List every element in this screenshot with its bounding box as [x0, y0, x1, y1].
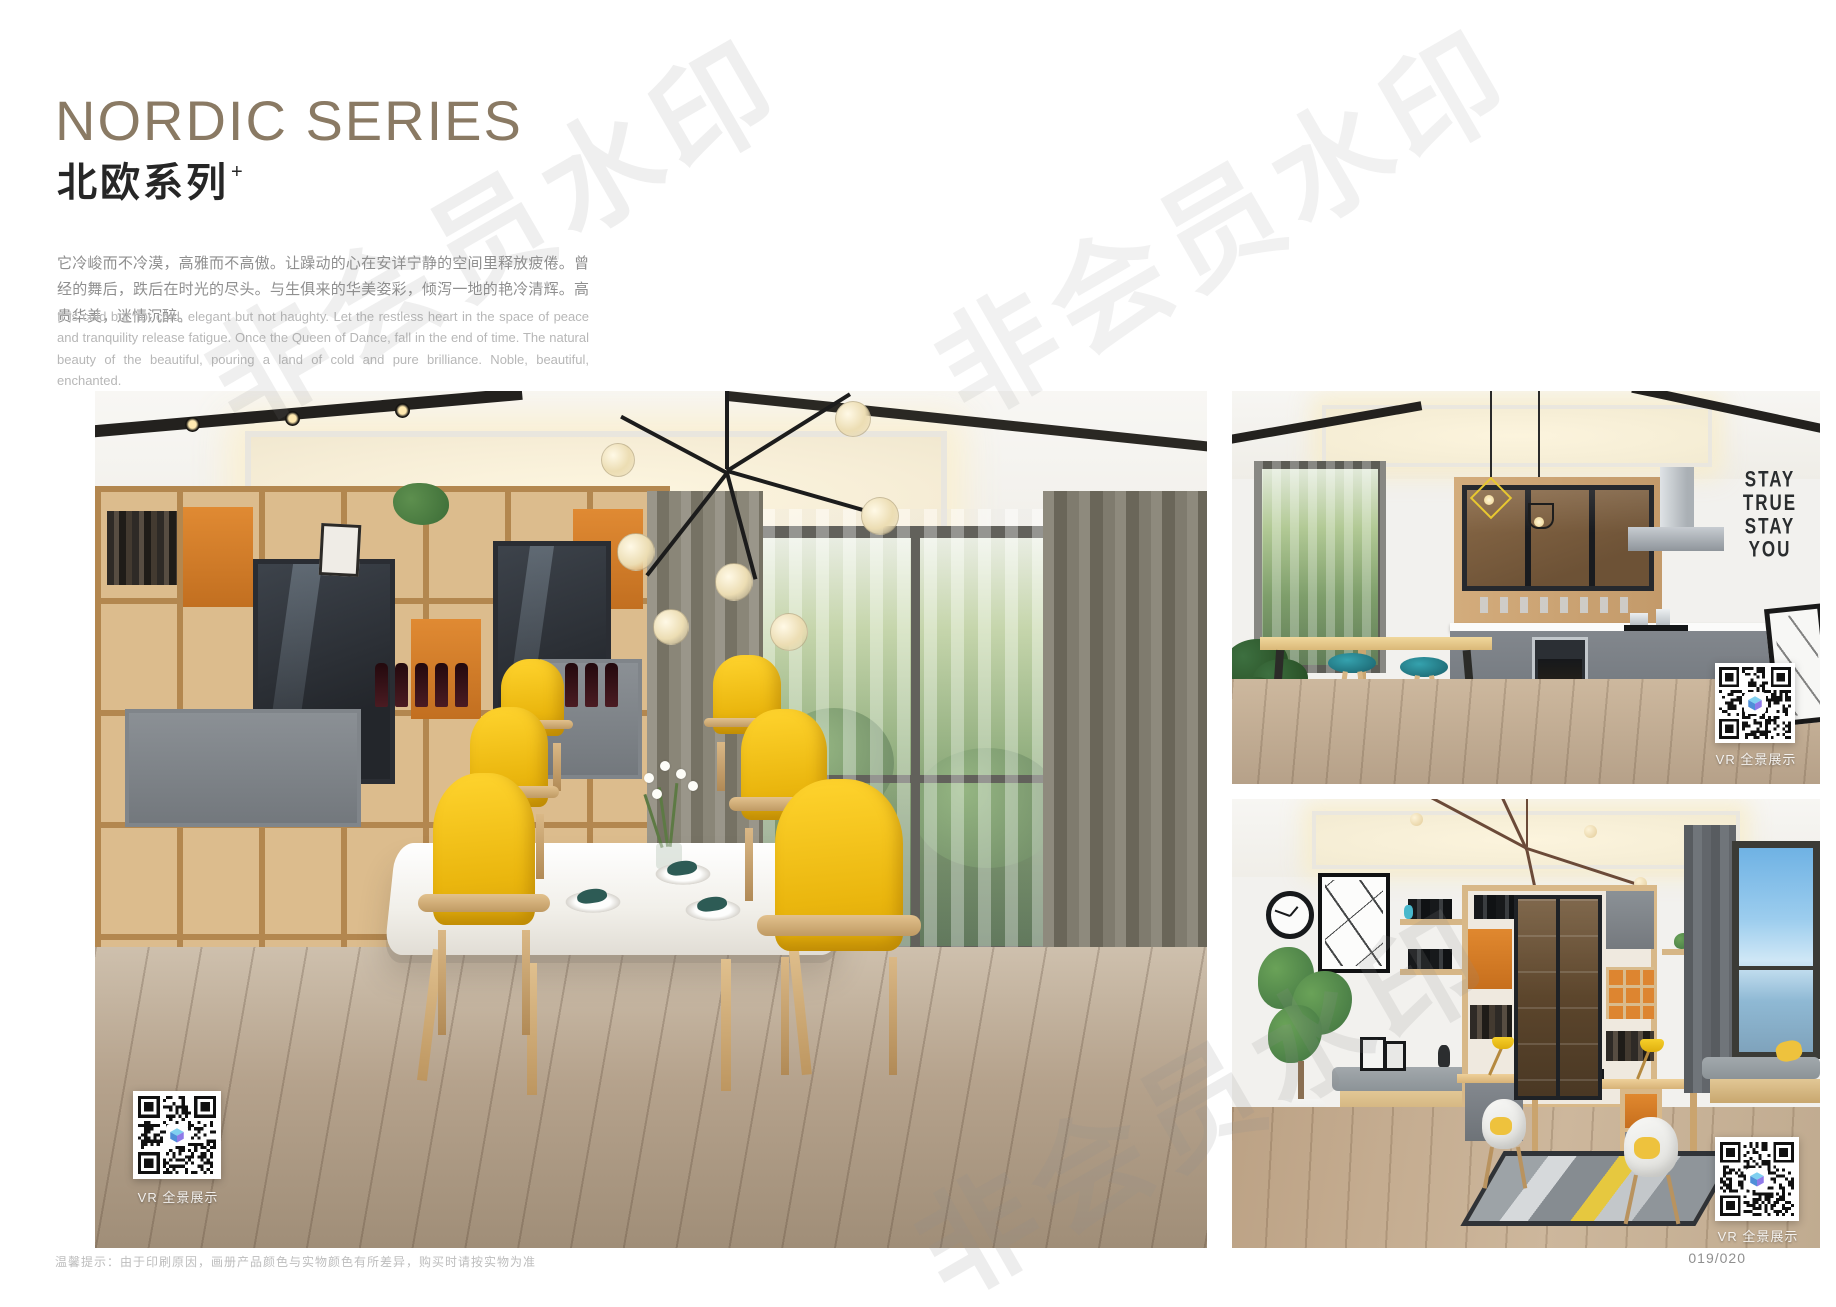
gray-cabinet-door: [125, 709, 361, 827]
gray-upper-cabinet: [1606, 891, 1654, 949]
wood-floor: [95, 947, 1207, 1248]
chandelier-globe: [617, 533, 655, 571]
wine-bottle: [435, 663, 448, 707]
wine-bottle: [455, 663, 468, 707]
abstract-art-frame: [1318, 873, 1390, 973]
chair-leg: [438, 930, 446, 1035]
chandelier-globe: [835, 401, 871, 437]
wine-bottle: [395, 663, 408, 707]
books: [107, 511, 177, 585]
qr-cube-logo: [166, 1124, 188, 1146]
clock-hand: [1275, 910, 1291, 917]
clock-hand: [1289, 906, 1298, 916]
shelf-cell-orange: [183, 507, 253, 607]
books: [1470, 1005, 1512, 1039]
watermark: 非会员水印: [900, 0, 1540, 450]
photo-kitchen: STAY TRUE STAY YOU VR 全景展示: [1232, 391, 1820, 784]
catalog-page: NORDIC SERIES 北欧系列+ 它冷峻而不冷漠，高雅而不高傲。让躁动的心…: [0, 0, 1836, 1307]
chair-leg: [745, 828, 753, 901]
shelf-plant: [393, 483, 449, 525]
wall-shelf: [1400, 919, 1462, 925]
bar-table: [1260, 637, 1492, 650]
cooking-pot: [1656, 609, 1670, 625]
description-en: It is cold but not cold, elegant but not…: [57, 306, 589, 392]
spotlight: [395, 403, 410, 418]
window-mullion: [1739, 966, 1813, 970]
window: [1732, 841, 1820, 1059]
pendant-cord: [1490, 391, 1492, 485]
chair-arm: [418, 894, 550, 912]
spotlight: [185, 417, 200, 432]
cube-icon: [1746, 694, 1764, 712]
cooktop: [1624, 625, 1688, 631]
chandelier-globe: [601, 443, 635, 477]
photo-dining-room: VR 全景展示: [95, 391, 1207, 1248]
chandelier-globe: [770, 613, 808, 651]
wine-bottle: [585, 663, 598, 707]
chair-pillow: [1490, 1117, 1512, 1135]
curtain: [1684, 825, 1736, 1093]
series-title-en: NORDIC SERIES: [55, 88, 523, 153]
qr-code: [1715, 663, 1795, 743]
vase: [1438, 1045, 1450, 1067]
dining-chair: [423, 773, 545, 1035]
shelf-decor: [1408, 899, 1452, 919]
qr-cube-logo: [1746, 1168, 1768, 1190]
cube-icon: [168, 1126, 186, 1144]
range-hood: [1628, 527, 1724, 551]
bulb: [1534, 517, 1544, 527]
window-seat-base: [1710, 1079, 1820, 1103]
stool-seat: [1328, 653, 1376, 673]
chair-leg: [717, 742, 725, 791]
wall-shelf: [1400, 969, 1462, 975]
desk-lamp-yellow: [1492, 1037, 1514, 1049]
wall-quote: STAY TRUE STAY YOU: [1730, 468, 1810, 561]
chandelier-rod: [645, 472, 728, 577]
sputnik-chandelier: [565, 391, 905, 655]
chandelier-globe: [653, 609, 689, 645]
cube-icon: [1748, 1170, 1766, 1188]
page-number: 019/020: [1688, 1250, 1746, 1266]
wine-bottle: [375, 663, 388, 707]
stool-seat: [1400, 657, 1448, 677]
chandelier-rod: [726, 469, 871, 514]
wall-quote-line: YOU: [1730, 538, 1810, 561]
orange-cubbies: [1606, 967, 1654, 1019]
shelf-cell-orange: [1468, 929, 1512, 989]
chandelier-globe: [861, 497, 899, 535]
chandelier-rod: [726, 392, 851, 472]
flower: [688, 781, 698, 791]
wine-bottle: [415, 663, 428, 707]
kitchen-jars: [1480, 597, 1636, 613]
flower-stem: [669, 783, 679, 847]
vr-label: VR 全景展示: [1715, 1226, 1801, 1245]
spotlight: [285, 411, 300, 426]
qr-code: [1715, 1137, 1799, 1221]
wall-quote-line: TRUE: [1730, 491, 1810, 514]
table-leg: [721, 959, 731, 1091]
chair-arm: [757, 915, 921, 936]
qr-code: [133, 1091, 221, 1179]
series-title-plus: +: [231, 161, 246, 183]
vr-panorama-tag: VR 全景展示: [133, 1091, 223, 1206]
series-title-zh-text: 北欧系列: [57, 161, 229, 205]
wall-quote-line: STAY: [1730, 515, 1810, 538]
qr-cube-logo: [1744, 692, 1766, 714]
bulb: [1484, 495, 1494, 505]
vr-panorama-tag: VR 全景展示: [1715, 663, 1797, 768]
chandelier-globe: [1584, 825, 1597, 838]
series-title-zh: 北欧系列+: [57, 150, 246, 208]
wine-bottle: [605, 663, 618, 707]
print-disclaimer: 温馨提示：由于印刷原因，画册产品颜色与实物颜色有所差异，购买时请按实物为准: [55, 1253, 536, 1270]
blue-vase: [1404, 905, 1413, 919]
glass-display-cabinet: [1514, 895, 1602, 1100]
wall-clock: [1266, 891, 1314, 939]
window-seat-cushion: [1702, 1057, 1820, 1079]
vr-label: VR 全景展示: [133, 1187, 223, 1206]
leaning-frame: [1360, 1037, 1386, 1071]
vr-panorama-tag: VR 全景展示: [1715, 1137, 1801, 1245]
geometric-rug: [1460, 1151, 1738, 1226]
wall-quote-line: STAY: [1730, 468, 1810, 491]
flower: [652, 789, 662, 799]
plant-foliage: [1268, 1005, 1322, 1063]
photo-study-room: VR 全景展示: [1232, 799, 1820, 1248]
chandelier-globe: [715, 563, 753, 601]
flower: [660, 761, 670, 771]
chair-leg: [781, 957, 789, 1075]
chair-leg: [522, 930, 530, 1035]
desk-lamp-yellow: [1640, 1039, 1664, 1052]
shelf-decor: [1408, 949, 1452, 969]
flower: [676, 769, 686, 779]
leaning-frame: [1384, 1041, 1406, 1071]
flower: [644, 773, 654, 783]
chandelier-stem: [725, 391, 729, 469]
chandelier-rod: [620, 415, 728, 475]
chair-leg: [889, 957, 897, 1075]
chandelier-stem: [1526, 799, 1528, 847]
chair-pillow: [1634, 1137, 1660, 1159]
picture-frame: [319, 523, 362, 577]
vr-label: VR 全景展示: [1715, 749, 1797, 768]
chandelier-globe: [1410, 813, 1423, 826]
range-hood-chimney: [1660, 467, 1694, 529]
dining-chair: [763, 779, 915, 1075]
cooking-pot: [1630, 613, 1648, 625]
